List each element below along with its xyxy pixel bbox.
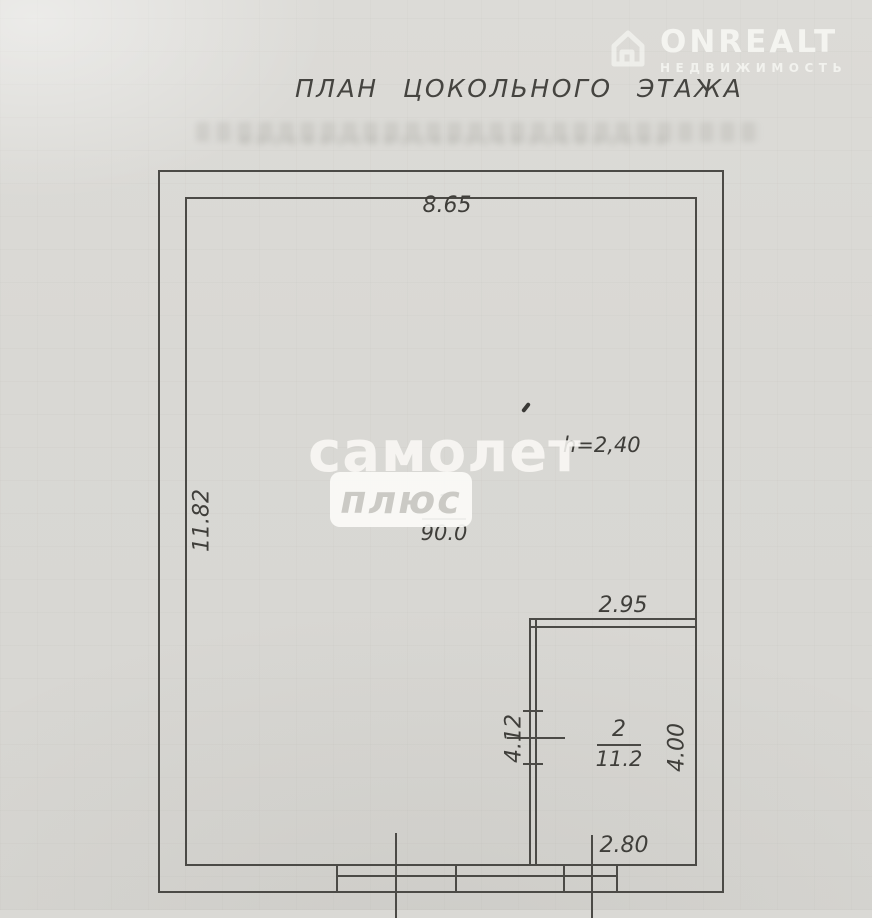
room2-top-wall	[529, 618, 695, 628]
dim-left-height: 11.82	[190, 481, 215, 561]
dim-room2-width-bottom: 2.80	[574, 833, 674, 858]
onrealt-subtitle: НЕДВИЖИМОСТЬ	[660, 61, 847, 75]
fraction-line	[597, 744, 641, 746]
wall-divider	[336, 864, 338, 891]
dim-top-width: 8.65	[387, 193, 507, 218]
wall-divider	[616, 864, 618, 891]
onrealt-watermark: ONREALT НЕДВИЖИМОСТЬ	[604, 24, 847, 75]
watermark-plus-badge: плюс	[330, 472, 472, 527]
axis-line	[395, 833, 397, 918]
wall-divider	[455, 864, 457, 891]
page-title: ПЛАН ЦОКОЛЬНОГО ЭТАЖА	[295, 74, 677, 103]
room2-number: 2	[579, 718, 659, 742]
room2-left-wall	[529, 618, 537, 864]
watermark-plus-text: плюс	[340, 478, 462, 522]
room2-label: 2 11.2	[579, 718, 659, 771]
dim-room2-width-top: 2.95	[563, 593, 683, 618]
onrealt-text: ONREALT НЕДВИЖИМОСТЬ	[660, 24, 847, 75]
house-icon	[604, 24, 652, 72]
dim-room2-height-left: 4.12	[502, 699, 527, 779]
floor-plan: 8.65 11.82 2.95 4.12 4.00 2.80 h=2,40 1 …	[158, 170, 724, 893]
onrealt-brand: ONREALT	[660, 24, 847, 60]
window-sill-line	[336, 875, 616, 877]
wall-divider	[563, 864, 565, 891]
faded-text-band-2	[240, 136, 670, 146]
dim-room2-height-right: 4.00	[665, 708, 690, 788]
room2-area: 11.2	[579, 748, 659, 771]
